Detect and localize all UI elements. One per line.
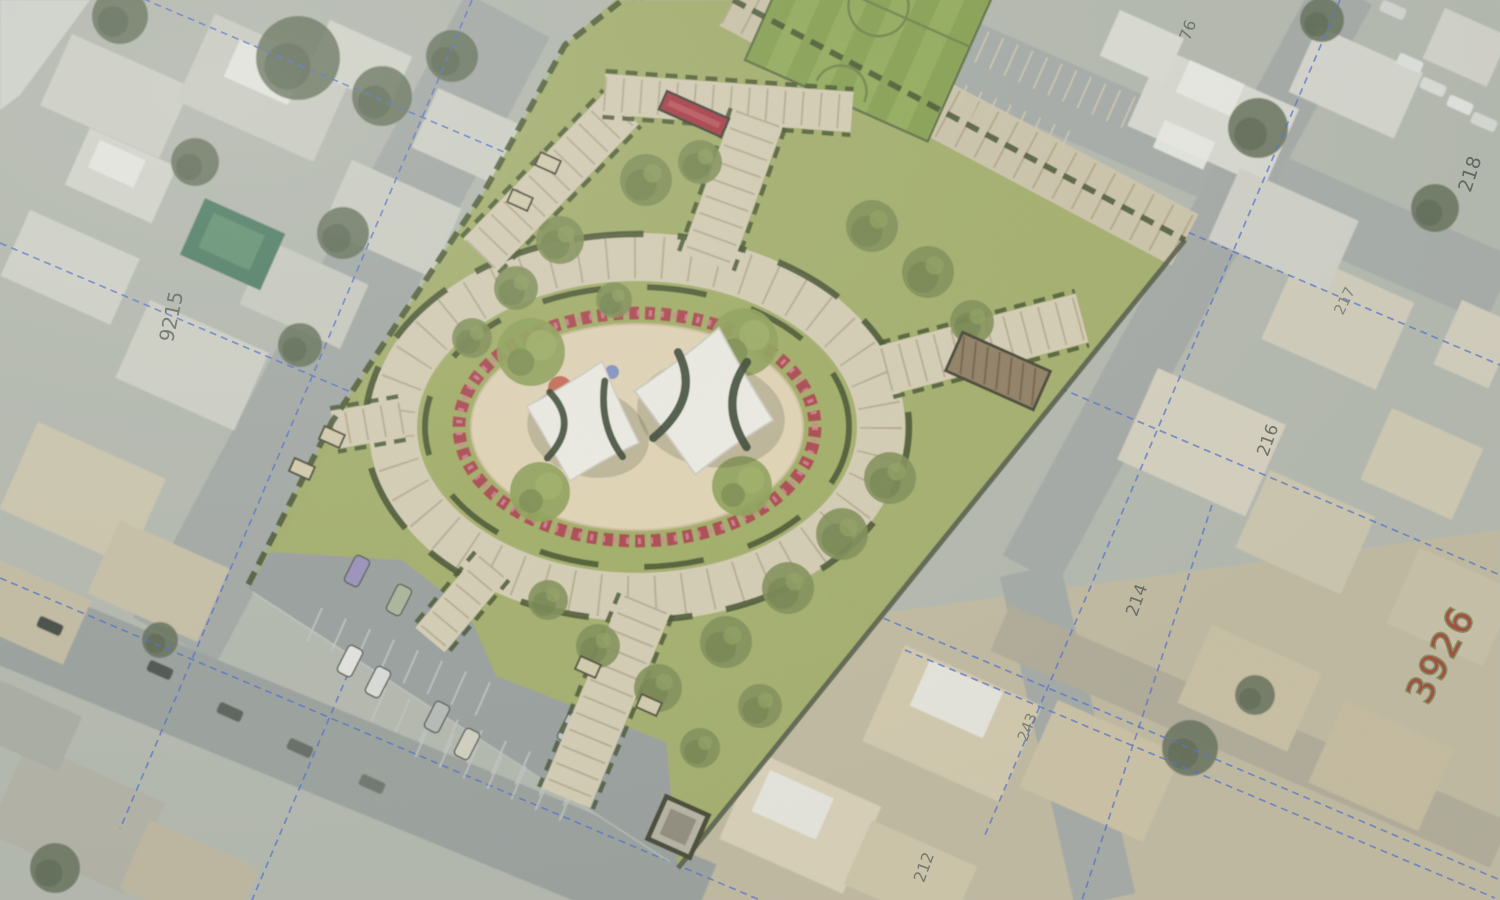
aerial-site-plan-map: 9215218762172162142432123926	[0, 0, 1500, 900]
atmospheric-haze-overlay	[0, 0, 1500, 900]
aerial-map-viewport: 9215218762172162142432123926	[0, 0, 1500, 900]
